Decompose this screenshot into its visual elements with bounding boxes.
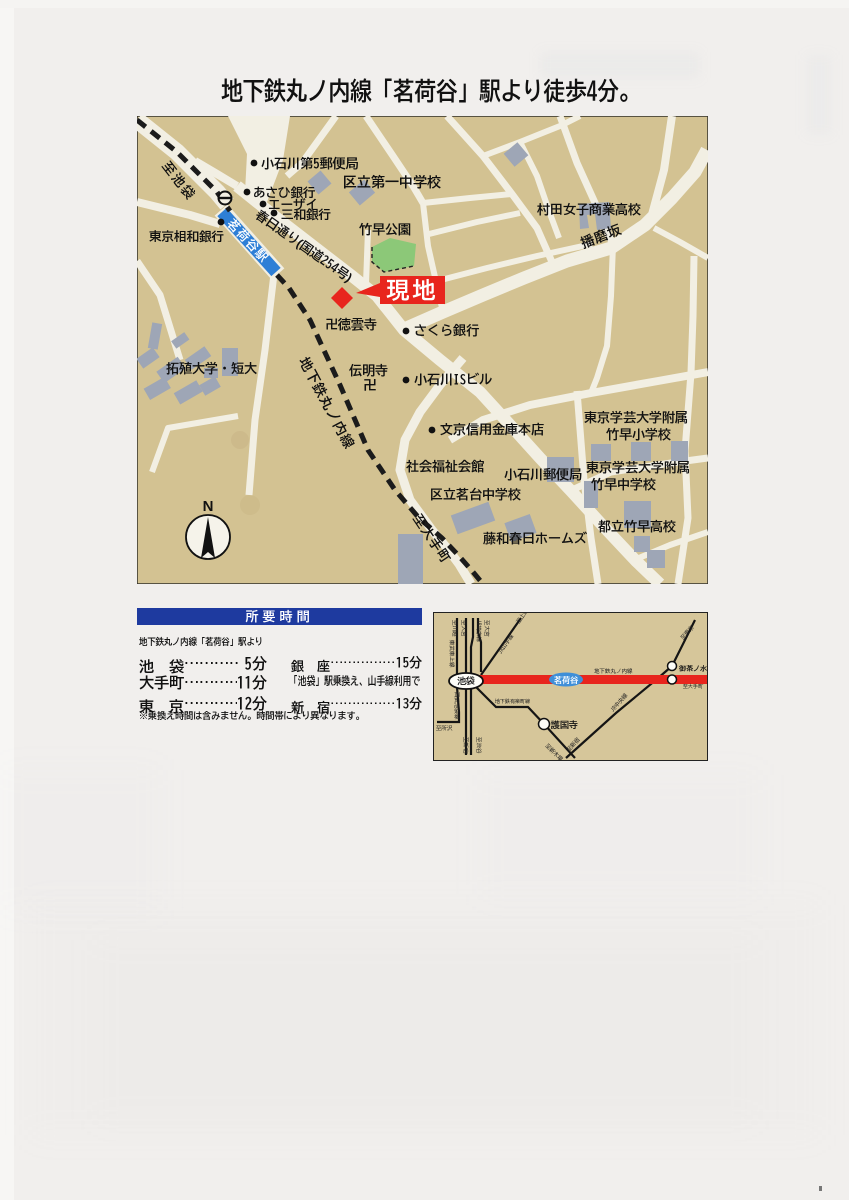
svg-text:JR埼京線: JR埼京線 — [476, 619, 483, 643]
svg-text:拓殖大学・短大: 拓殖大学・短大 — [166, 361, 258, 375]
svg-text:地下鉄有楽町線: 地下鉄有楽町線 — [494, 698, 531, 704]
svg-text:護国寺: 護国寺 — [551, 720, 578, 730]
svg-text:卍徳雲寺: 卍徳雲寺 — [325, 318, 377, 331]
svg-text:東武東上線: 東武東上線 — [449, 639, 456, 668]
svg-text:東京学芸大学附属: 東京学芸大学附属 — [584, 410, 688, 424]
svg-text:社会福祉会館: 社会福祉会館 — [406, 460, 484, 473]
svg-text:御茶ノ水: 御茶ノ水 — [679, 664, 707, 672]
svg-text:竹早公園: 竹早公園 — [359, 222, 411, 236]
svg-text:卍: 卍 — [363, 378, 377, 392]
svg-text:至新宿: 至新宿 — [463, 737, 469, 754]
svg-text:藤和春日ホームズ: 藤和春日ホームズ — [482, 531, 587, 545]
svg-text:茗荷谷: 茗荷谷 — [553, 676, 578, 685]
svg-text:至川越: 至川越 — [451, 620, 458, 637]
svg-text:東京学芸大学附属: 東京学芸大学附属 — [586, 460, 690, 474]
svg-text:小石川ISビル: 小石川ISビル — [414, 372, 492, 386]
svg-text:池袋: 池袋 — [456, 675, 475, 686]
svg-text:現地: 現地 — [387, 279, 439, 302]
svg-text:村田女子商業高校: 村田女子商業高校 — [537, 202, 641, 216]
svg-text:都立竹早高校: 都立竹早高校 — [597, 519, 676, 533]
svg-text:さくら銀行: さくら銀行 — [414, 323, 479, 337]
svg-text:小石川第5郵便局: 小石川第5郵便局 — [261, 156, 359, 170]
svg-text:地下鉄丸ノ内線: 地下鉄丸ノ内線 — [594, 667, 633, 675]
svg-text:小石川郵便局: 小石川郵便局 — [504, 467, 582, 481]
svg-text:東京相和銀行: 東京相和銀行 — [149, 230, 224, 243]
svg-text:竹早中学校: 竹早中学校 — [591, 477, 656, 491]
svg-text:西武池袋線: 西武池袋線 — [453, 692, 461, 720]
svg-text:区立茗台中学校: 区立茗台中学校 — [430, 487, 521, 501]
svg-text:文京信用金庫本店: 文京信用金庫本店 — [440, 422, 544, 436]
svg-text:至所沢: 至所沢 — [436, 725, 453, 731]
svg-text:三和銀行: 三和銀行 — [281, 208, 331, 221]
svg-text:N: N — [203, 498, 214, 515]
svg-text:伝明寺: 伝明寺 — [349, 363, 388, 377]
svg-text:至大手町: 至大手町 — [683, 683, 704, 689]
svg-text:区立第一中学校: 区立第一中学校 — [343, 174, 442, 189]
svg-text:至渋谷: 至渋谷 — [476, 737, 482, 754]
svg-text:竹早小学校: 竹早小学校 — [606, 427, 671, 441]
svg-text:至大宮: 至大宮 — [461, 620, 467, 637]
svg-text:至大宮: 至大宮 — [484, 620, 490, 637]
